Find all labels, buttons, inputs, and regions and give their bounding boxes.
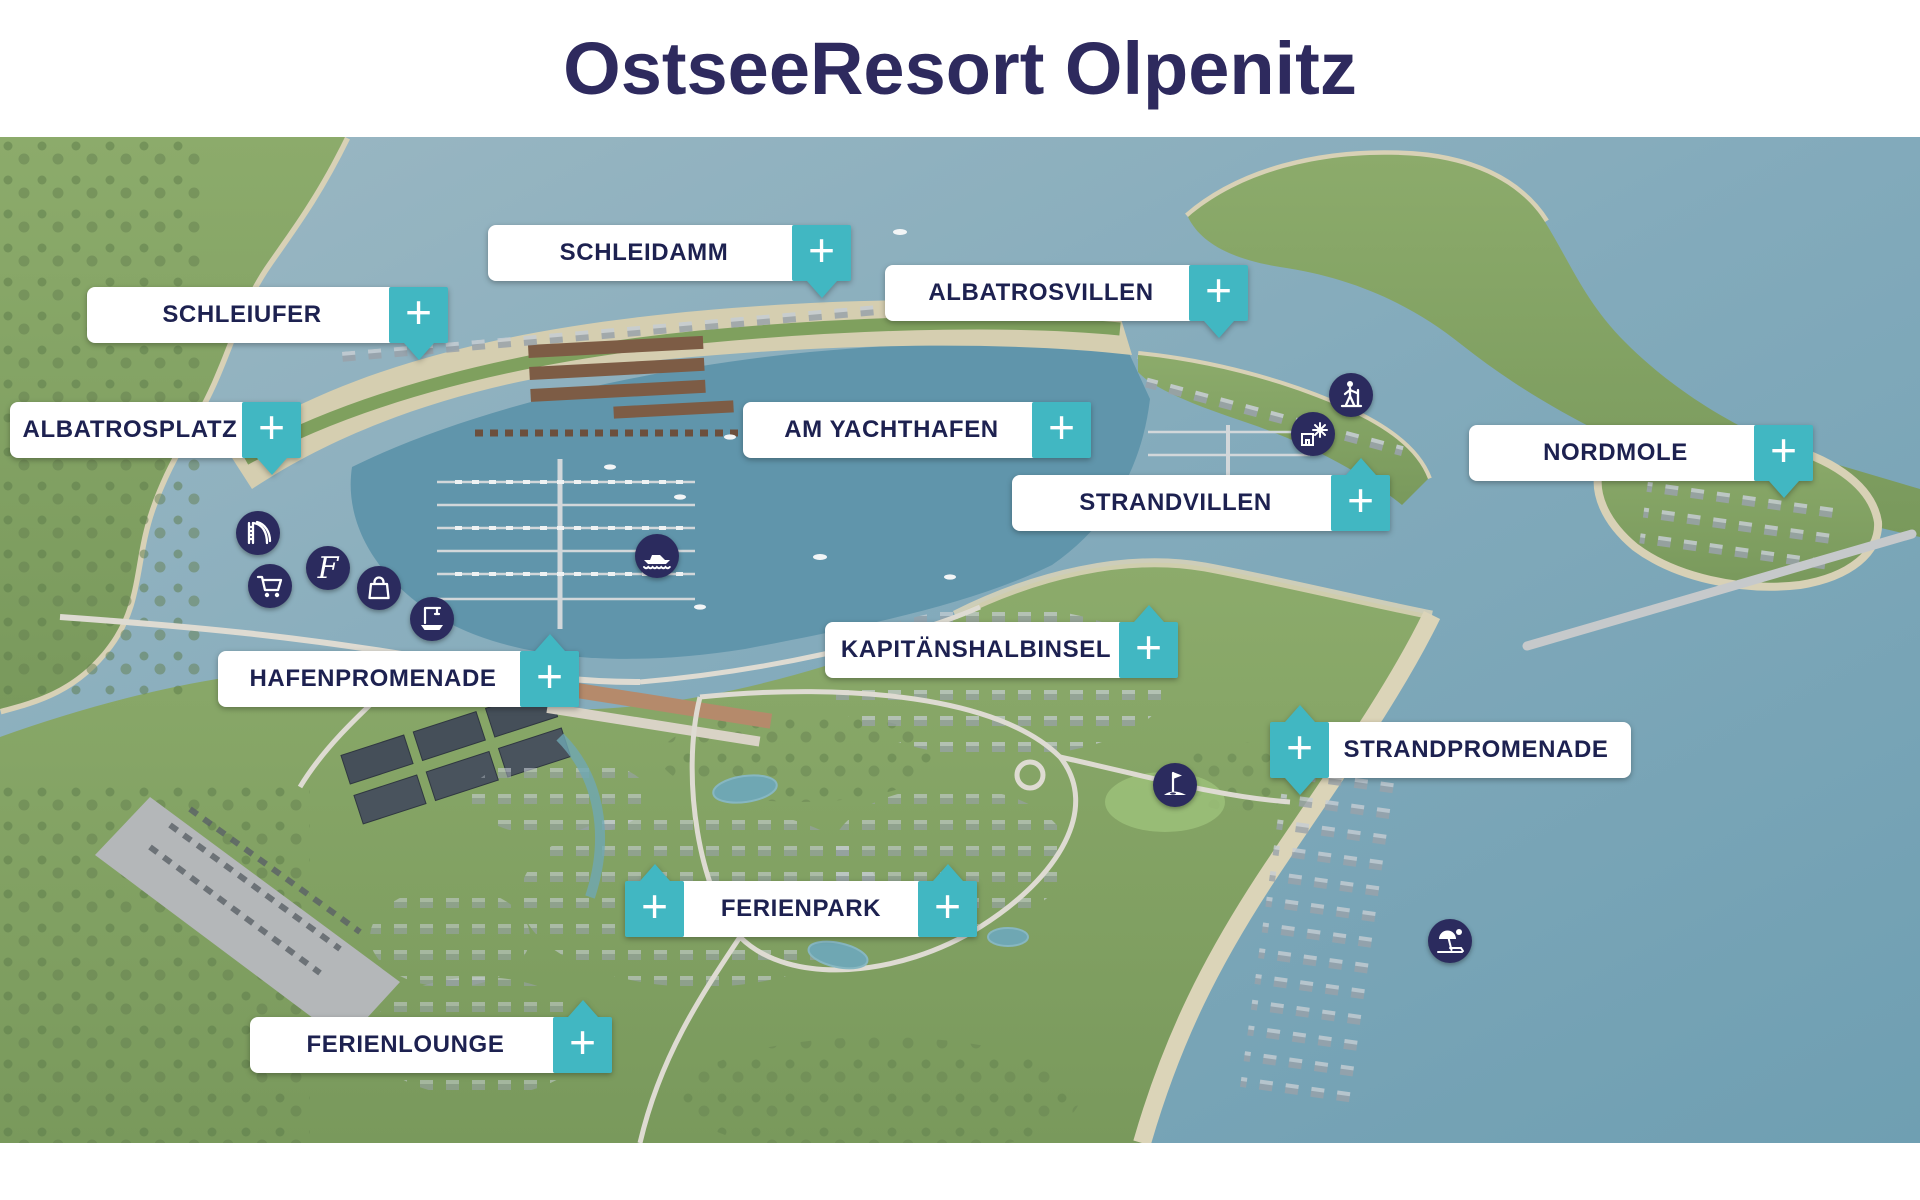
hiker-icon — [1329, 373, 1373, 417]
label-box-albatrosvillen[interactable]: ALBATROSVILLEN — [885, 265, 1197, 321]
label-box-strandpromenade[interactable]: STRANDPROMENADE — [1321, 722, 1631, 778]
expand-button-ferienlounge[interactable]: + — [553, 1017, 612, 1073]
svg-text:F: F — [317, 551, 340, 586]
plus-icon: + — [1347, 477, 1374, 523]
label-text: AM YACHTHAFEN — [784, 416, 998, 444]
map-label-strandvillen: STRANDVILLEN + — [1012, 475, 1390, 531]
label-text: FERIENLOUNGE — [307, 1031, 505, 1059]
expand-button-am-yachthafen[interactable]: + — [1032, 402, 1091, 458]
label-text: STRANDVILLEN — [1079, 489, 1272, 517]
plus-icon: + — [405, 289, 432, 335]
expand-button-albatrosplatz[interactable]: + — [242, 402, 301, 458]
plus-icon: + — [1205, 267, 1232, 313]
plus-icon: + — [1048, 404, 1075, 450]
expand-button-schleiufer[interactable]: + — [389, 287, 448, 343]
label-box-ferienpark[interactable]: FERIENPARK — [676, 881, 926, 937]
expand-button-strandvillen[interactable]: + — [1331, 475, 1390, 531]
label-text: KAPITÄNSHALBINSEL — [841, 636, 1111, 664]
map-label-schleiufer: SCHLEIUFER + — [87, 287, 448, 343]
plus-icon: + — [258, 404, 285, 450]
map-label-strandpromenade: + STRANDPROMENADE — [1270, 722, 1631, 778]
label-box-ferienlounge[interactable]: FERIENLOUNGE — [250, 1017, 561, 1073]
map-label-nordmole: NORDMOLE + — [1469, 425, 1813, 481]
label-text: SCHLEIUFER — [162, 301, 321, 329]
page: OstseeResort Olpenitz — [0, 0, 1920, 1200]
map-label-albatrosplatz: ALBATROSPLATZ + — [10, 402, 301, 458]
plus-icon: + — [569, 1019, 596, 1065]
map-label-albatrosvillen: ALBATROSVILLEN + — [885, 265, 1248, 321]
label-text: STRANDPROMENADE — [1343, 736, 1608, 764]
map-label-kapitaenshalbinsel: KAPITÄNSHALBINSEL + — [825, 622, 1178, 678]
label-text: ALBATROSVILLEN — [928, 279, 1153, 307]
map-label-hafenpromenade: HAFENPROMENADE + — [218, 651, 579, 707]
map-label-schleidamm: SCHLEIDAMM + — [488, 225, 851, 281]
expand-button-nordmole[interactable]: + — [1754, 425, 1813, 481]
label-box-albatrosplatz[interactable]: ALBATROSPLATZ — [10, 402, 250, 458]
expand-button-schleidamm[interactable]: + — [792, 225, 851, 281]
map-label-am-yachthafen: AM YACHTHAFEN + — [743, 402, 1091, 458]
expand-button-strandpromenade[interactable]: + — [1270, 722, 1329, 778]
label-text: NORDMOLE — [1543, 439, 1688, 467]
label-box-strandvillen[interactable]: STRANDVILLEN — [1012, 475, 1339, 531]
map-label-ferienpark: + FERIENPARK + — [625, 881, 977, 937]
label-text: FERIENPARK — [721, 895, 881, 923]
label-box-am-yachthafen[interactable]: AM YACHTHAFEN — [743, 402, 1040, 458]
motorboat-icon — [635, 534, 679, 578]
expand-button-albatrosvillen[interactable]: + — [1189, 265, 1248, 321]
label-box-hafenpromenade[interactable]: HAFENPROMENADE — [218, 651, 528, 707]
beach-umbrella-icon — [1428, 919, 1472, 963]
label-box-schleidamm[interactable]: SCHLEIDAMM — [488, 225, 800, 281]
plus-icon: + — [1135, 624, 1162, 670]
windmill-icon — [1291, 412, 1335, 456]
plus-icon: + — [934, 883, 961, 929]
plus-icon: + — [1770, 427, 1797, 473]
golf-flag-icon — [1153, 763, 1197, 807]
page-title: OstseeResort Olpenitz — [563, 26, 1357, 111]
label-text: HAFENPROMENADE — [249, 665, 496, 693]
label-text: ALBATROSPLATZ — [23, 416, 238, 444]
letter-f-icon: F — [306, 546, 350, 590]
map-label-ferienlounge: FERIENLOUNGE + — [250, 1017, 612, 1073]
expand-button-hafenpromenade[interactable]: + — [520, 651, 579, 707]
boat-crane-icon — [410, 597, 454, 641]
plus-icon: + — [808, 227, 835, 273]
resort-map: F — [0, 137, 1920, 1143]
label-box-nordmole[interactable]: NORDMOLE — [1469, 425, 1762, 481]
label-box-kapitaenshalbinsel[interactable]: KAPITÄNSHALBINSEL — [825, 622, 1127, 678]
label-box-schleiufer[interactable]: SCHLEIUFER — [87, 287, 397, 343]
shopping-bag-icon — [357, 566, 401, 610]
water-slide-icon — [236, 511, 280, 555]
expand-button-ferienpark-west[interactable]: + — [625, 881, 684, 937]
header: OstseeResort Olpenitz — [0, 0, 1920, 137]
shopping-cart-icon — [248, 564, 292, 608]
expand-button-kapitaenshalbinsel[interactable]: + — [1119, 622, 1178, 678]
plus-icon: + — [536, 653, 563, 699]
expand-button-ferienpark-east[interactable]: + — [918, 881, 977, 937]
plus-icon: + — [641, 883, 668, 929]
label-text: SCHLEIDAMM — [560, 239, 729, 267]
plus-icon: + — [1286, 724, 1313, 770]
